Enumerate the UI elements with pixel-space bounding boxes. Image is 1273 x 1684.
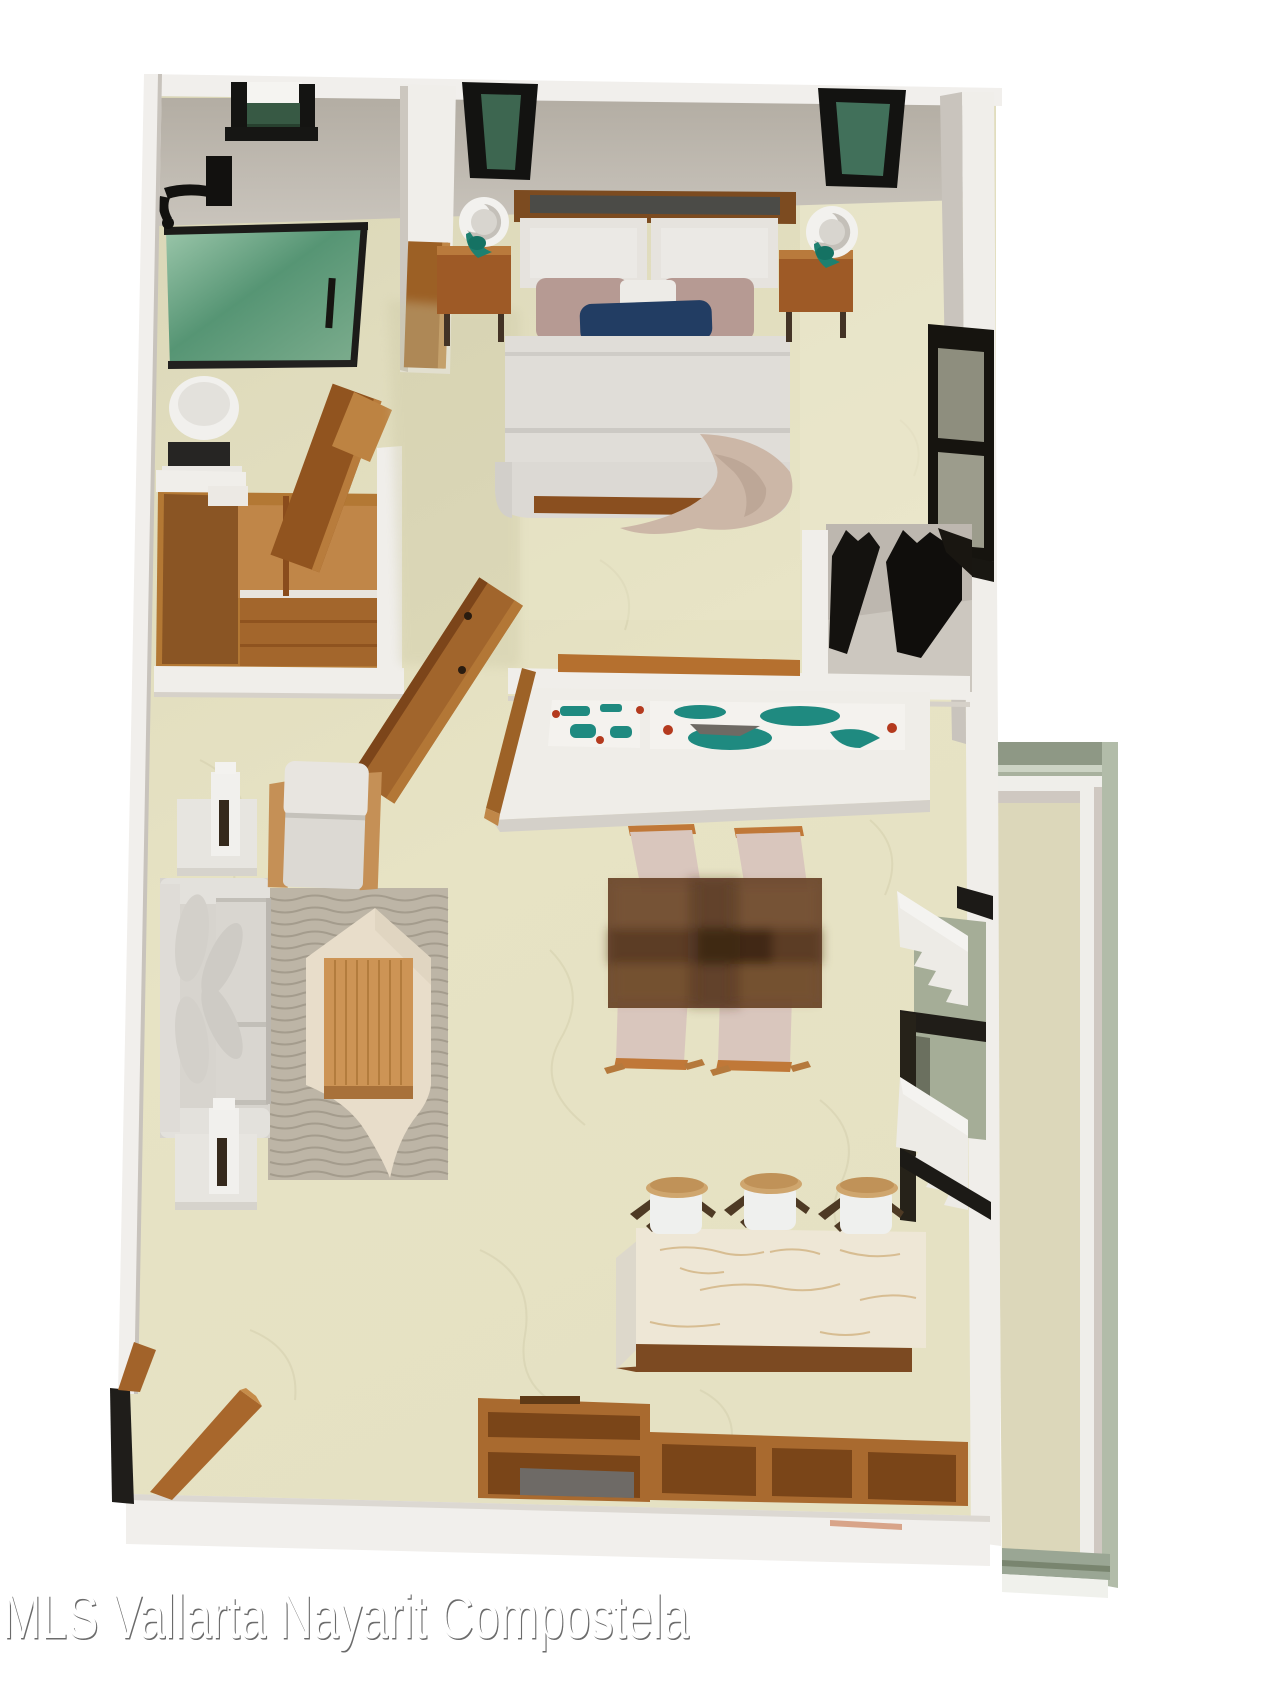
svg-text:MLS Vallarta Nayarit Compostel: MLS Vallarta Nayarit Compostela [2, 1582, 689, 1652]
